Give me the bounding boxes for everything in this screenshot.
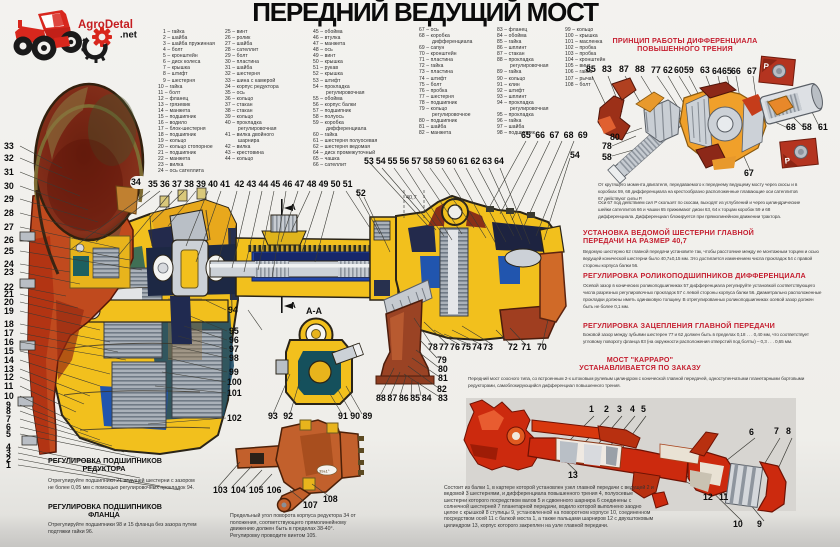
svg-text:А-А: А-А (306, 306, 322, 316)
svg-text:40,7: 40,7 (406, 195, 417, 201)
svg-text:А: А (290, 203, 296, 212)
svg-text:39±1°: 39±1° (319, 469, 330, 474)
svg-text:А: А (290, 301, 296, 310)
